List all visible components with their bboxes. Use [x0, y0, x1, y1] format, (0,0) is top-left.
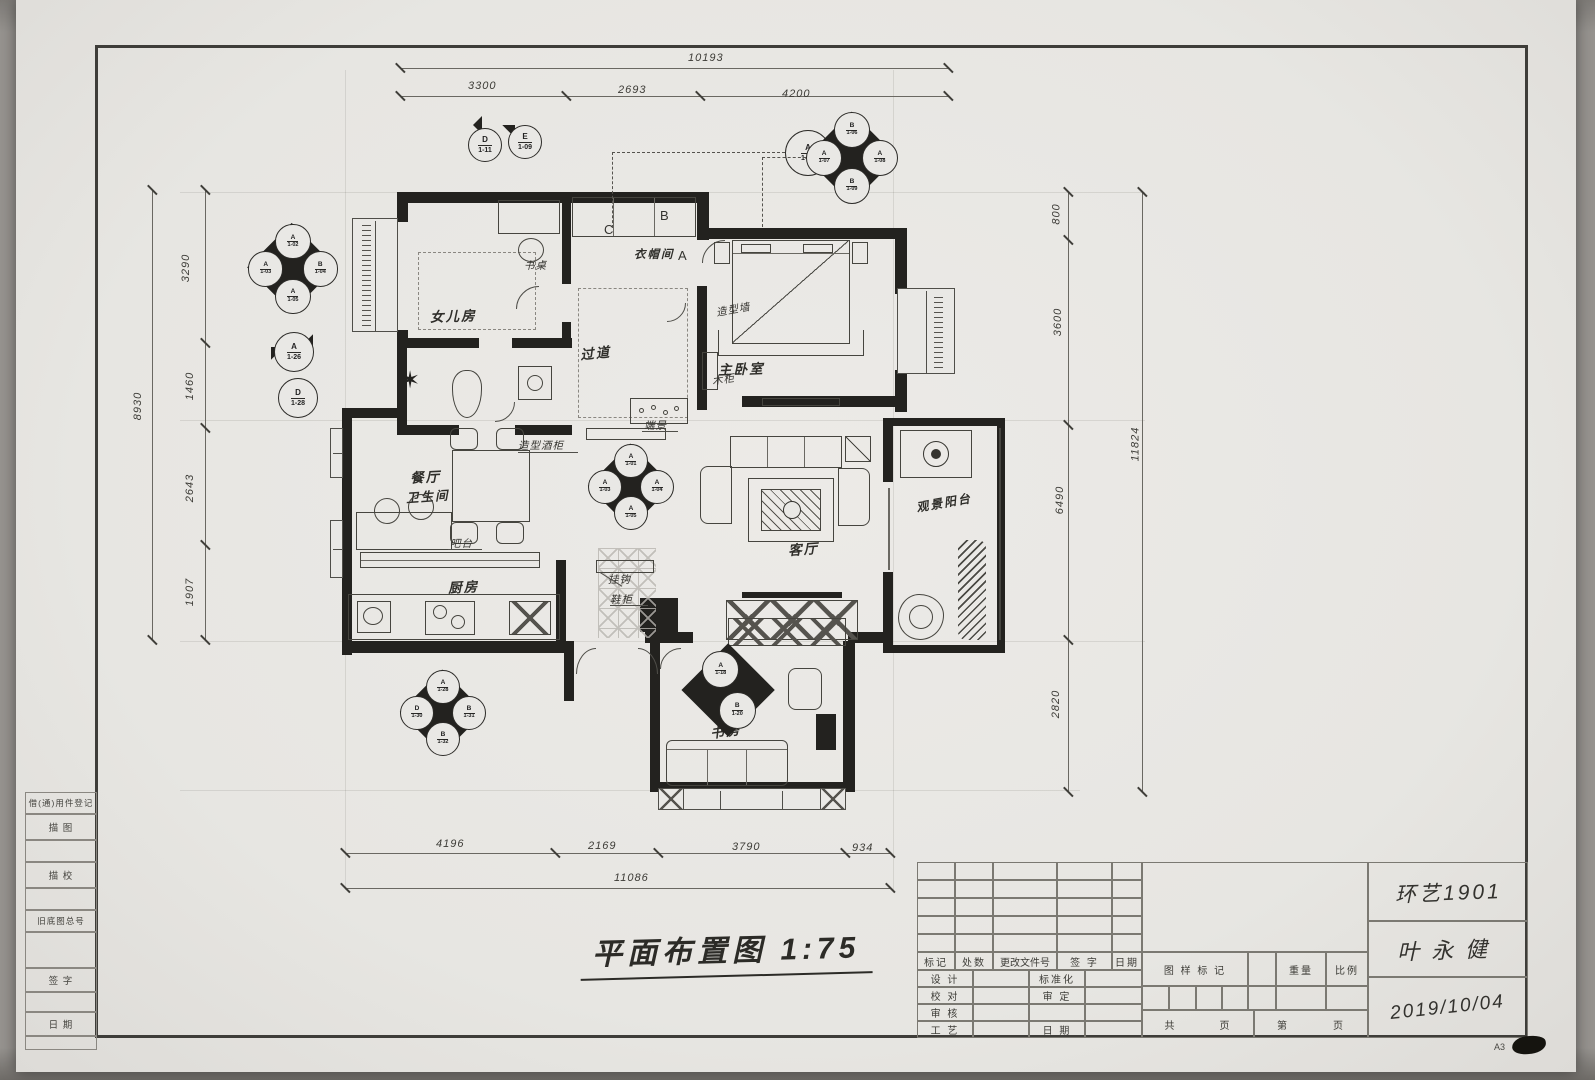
armchair-left — [700, 466, 732, 524]
dim-right-2: 3600 — [1052, 308, 1064, 336]
dining-chair — [450, 428, 478, 450]
dashed-leader — [762, 157, 763, 227]
class-name: 环艺1901 — [1394, 875, 1502, 909]
leader-line — [518, 452, 578, 453]
dimension-line — [345, 888, 890, 889]
margin-block-old-drawing-no: 旧底图总号 — [25, 910, 97, 932]
curtain-zigzag — [362, 224, 371, 326]
window-dining-1 — [330, 428, 343, 478]
dimension-line — [1068, 192, 1069, 792]
label-wood-cabinet: 木柜 — [711, 370, 736, 388]
bar-counter — [356, 512, 452, 550]
study-chair — [788, 668, 822, 710]
nightstand-right — [852, 242, 868, 264]
armchair-right — [838, 468, 870, 526]
weight-label: 重量 — [1276, 952, 1326, 986]
elevation-flag-marker: A1-26 — [268, 330, 320, 380]
dim-top-1: 3300 — [468, 80, 496, 92]
tv-panel — [742, 592, 842, 598]
role-design: 设 计 — [917, 970, 973, 987]
bed-end-bench — [718, 330, 864, 356]
coffee-table — [748, 478, 834, 542]
room-label-corridor: 过道 — [579, 340, 612, 363]
wall-segment — [697, 286, 707, 410]
room-label-kitchen: 厨房 — [447, 575, 479, 597]
margin-block-reuse-register: 借(通)用件登记 — [25, 792, 97, 814]
role-date: 日 期 — [1029, 1021, 1085, 1038]
elevation-index-marker: A1-01 A1-03 A1-04 A1-05 — [588, 444, 672, 528]
stamp-subcells-row — [1142, 986, 1368, 1010]
margin-block-blank — [25, 888, 97, 910]
dashed-leader — [612, 152, 613, 228]
leader-line — [448, 549, 482, 550]
balcony-sink — [900, 430, 972, 478]
dim-left-3: 2643 — [184, 474, 196, 502]
elevation-letter-b: B — [660, 208, 670, 223]
photographed-drawing-sheet: 女儿房 卫生间 过道 衣帽间 主卧室 餐厅 厨房 客厅 观景阳台 书房 书桌 造… — [0, 0, 1595, 1080]
dim-bottom-2: 2169 — [588, 840, 616, 852]
construction-line — [180, 790, 1080, 791]
class-name-cell: 环艺1901 — [1368, 862, 1528, 921]
margin-block-tracing-check: 描 校 — [25, 862, 97, 888]
detail-circle-marker: D1-28 — [278, 378, 318, 418]
margin-block-blank — [25, 840, 97, 862]
master-bed — [732, 240, 850, 344]
label-wine-cabinet: 造型酒柜 — [518, 438, 564, 453]
student-name: 叶永健 — [1396, 931, 1499, 967]
rev-header-sign: 签 字 — [1057, 952, 1112, 970]
tv-niche — [762, 398, 840, 406]
wall-segment — [397, 338, 479, 348]
study-cabinet — [816, 714, 836, 750]
wall-segment — [883, 645, 1005, 653]
dim-right-1: 800 — [1051, 203, 1063, 224]
wall-segment — [895, 228, 907, 294]
elevation-letter-a: A — [678, 248, 688, 263]
room-label-daughter: 女儿房 — [430, 304, 477, 326]
stamp-header-row: 图 样 标 记 重量 比例 — [1142, 952, 1368, 986]
dim-right-3: 6490 — [1054, 486, 1066, 514]
dim-bottom-1: 4196 — [436, 838, 464, 850]
kitchen-counter — [348, 594, 560, 640]
dim-top-overall: 10193 — [688, 52, 724, 64]
nightstand-left — [714, 242, 730, 264]
elevation-index-marker: A1-28 D1-30 B1-31 B1-32 — [400, 670, 484, 754]
room-label-cloak: 衣帽间 — [634, 246, 675, 262]
balcony-glazing-line — [999, 428, 1001, 640]
study-sofa — [666, 740, 788, 786]
study-closet — [728, 618, 846, 646]
window-end-box — [820, 788, 846, 810]
pass-counter — [360, 552, 540, 568]
dimension-line — [400, 68, 948, 69]
revision-table: 标记 处数 更改文件号 签 字 日期 — [917, 862, 1142, 970]
rev-header-mark: 标记 — [917, 952, 955, 970]
drawing-number-cell — [1142, 862, 1368, 952]
stamp-mark-label: 图 样 标 记 — [1142, 952, 1248, 986]
rev-header-count: 处数 — [955, 952, 993, 970]
role-audit: 审 核 — [917, 1004, 973, 1021]
dimension-line — [400, 96, 948, 97]
dim-top-3: 4200 — [782, 88, 810, 100]
window-daughter — [352, 218, 398, 332]
dashed-leader — [762, 157, 806, 158]
sliding-door-line — [888, 488, 890, 570]
dimension-line — [205, 190, 206, 640]
wall-segment — [562, 192, 571, 284]
label-desk: 书桌 — [524, 258, 547, 273]
rev-header-date: 日期 — [1112, 952, 1142, 970]
room-label-bath: 卫生间 — [405, 485, 450, 507]
role-proof: 校 对 — [917, 987, 973, 1004]
wall-segment — [883, 418, 1005, 426]
wall-segment — [700, 228, 907, 239]
dimension-line — [345, 853, 890, 854]
desk — [498, 200, 560, 234]
wardrobe-rack — [572, 197, 696, 237]
role-approve: 审 定 — [1029, 987, 1085, 1004]
wall-segment — [342, 641, 566, 653]
role-craft: 工 艺 — [917, 1021, 973, 1038]
dimension-line — [152, 190, 153, 640]
wall-segment — [397, 192, 408, 222]
drawing-title: 平面布置图 1:75 — [579, 922, 873, 981]
dim-right-overall: 11824 — [1129, 427, 1141, 462]
elevation-index-marker: A1-02 A1-03 B1-04 A1-05 — [248, 224, 336, 312]
dining-table — [452, 450, 530, 522]
wall-segment — [342, 408, 404, 418]
leader-line — [642, 431, 678, 432]
dim-left-1: 3290 — [180, 254, 192, 282]
total-pages-cell: 共页 — [1142, 1010, 1254, 1038]
tall-plant — [958, 540, 986, 640]
window-end-box — [658, 788, 684, 810]
rev-header-file: 更改文件号 — [993, 952, 1057, 970]
wall-segment — [883, 420, 893, 482]
dim-right-4: 2820 — [1050, 690, 1062, 718]
dimension-line — [1142, 192, 1143, 792]
bar-stool — [374, 498, 400, 524]
window-master — [897, 288, 955, 374]
date-cell: 2019/10/04 — [1368, 977, 1528, 1038]
dashed-leader — [612, 152, 785, 153]
dining-chair — [496, 522, 524, 544]
room-label-living: 客厅 — [787, 537, 819, 559]
page-number-cell: 第页 — [1254, 1010, 1368, 1038]
corner-table — [845, 436, 871, 462]
margin-block-blank — [25, 992, 97, 1012]
margin-block-signature: 签 字 — [25, 968, 97, 992]
sofa-long — [730, 436, 842, 468]
wash-basin — [518, 366, 552, 400]
curtain-zigzag — [934, 294, 943, 368]
room-label-dining: 餐厅 — [409, 465, 441, 487]
wall-segment — [562, 322, 571, 348]
margin-block-date: 日 期 — [25, 1012, 97, 1036]
dim-bottom-3: 3790 — [732, 841, 760, 853]
window-dining-2 — [330, 520, 343, 578]
dim-left-4: 1907 — [184, 578, 196, 606]
dim-left-2: 1460 — [184, 372, 196, 400]
dim-top-2: 2693 — [618, 84, 646, 96]
bay-window-study — [658, 788, 846, 810]
elevation-index-marker: A1-18 B1-20 — [682, 644, 774, 736]
student-name-cell: 叶永健 — [1368, 921, 1528, 977]
role-standard: 标准化 — [1029, 970, 1085, 987]
scale-label: 比例 — [1326, 952, 1368, 986]
wall-segment — [843, 641, 855, 784]
dim-bottom-4: 934 — [852, 842, 873, 854]
leader-line — [610, 605, 648, 606]
margin-block-tracing: 描 图 — [25, 814, 97, 840]
wall-segment — [564, 641, 574, 701]
margin-block-blank — [25, 932, 97, 968]
date-entry: 2019/10/04 — [1390, 991, 1507, 1025]
roles-table: 设 计 标准化 校 对 审 定 审 核 工 艺 日 期 — [917, 970, 1142, 1038]
sheet-size-label: A3 — [1494, 1042, 1505, 1052]
star-symbol: ✶ — [400, 366, 420, 395]
elevation-flag-markers: D1-11 E1-09 — [462, 120, 552, 170]
dim-bottom-overall: 11086 — [614, 872, 649, 884]
dim-left-overall: 8930 — [132, 392, 144, 420]
margin-block-blank — [25, 1036, 97, 1050]
page-count-row: 共页 第页 — [1142, 1010, 1368, 1038]
elevation-index-marker: B1-06 A1-07 A1-08 B1-09 — [806, 112, 896, 202]
